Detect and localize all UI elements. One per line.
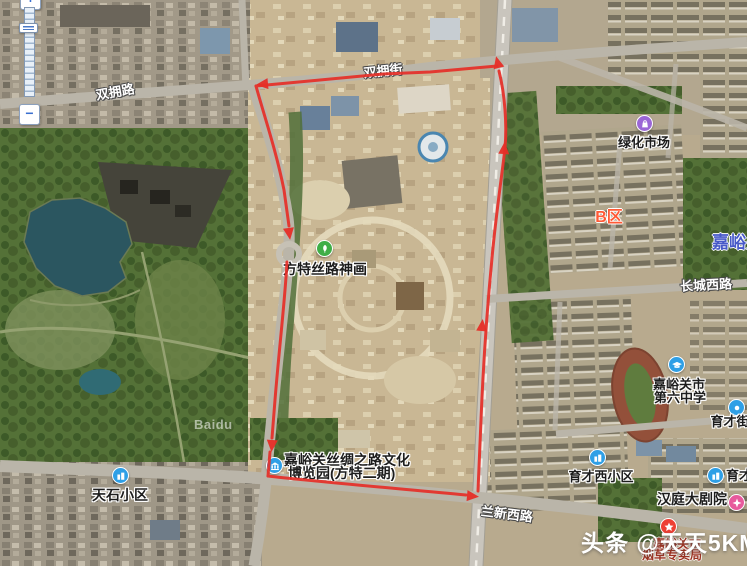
road-label-changcheng-west: 长城西路 [680,273,733,295]
poi-label-fangte-silk-road[interactable]: 方特丝路神画 [283,263,367,276]
area-label-b-district: B区 [595,203,623,227]
zoom-out-button[interactable]: − [19,104,40,125]
poi-label-expo-line2[interactable]: 博览园(方特二期) [288,467,395,480]
residence-icon[interactable] [589,449,606,466]
poi-label-yucai-clipped[interactable]: 育才 [726,469,747,482]
poi-label-lvhua-market[interactable]: 绿化市场 [618,136,670,149]
poi-label-tianshi[interactable]: 天石小区 [92,489,148,502]
map-canvas[interactable]: Baidu 双拥路 双拥街 长城西路 兰新西路 B区 嘉峪关 方特丝路神画 绿化… [0,0,747,566]
road-label-shuangyong-street: 双拥街 [363,59,404,82]
shopping-icon[interactable] [636,115,653,132]
toutiao-watermark: 头条 @天天5KM [581,524,747,558]
scenic-icon[interactable] [316,240,333,257]
theatre-icon[interactable] [728,494,745,511]
poi-label-hanting-theatre[interactable]: 汉庭大剧院 [657,493,727,506]
zoom-slider-track[interactable] [24,7,35,97]
school-icon[interactable] [668,356,685,373]
poi-label-school-line2[interactable]: 第六中学 [654,391,706,404]
zoom-slider-handle[interactable] [19,23,38,33]
residence-icon[interactable] [112,467,129,484]
poi-label-yucai-street[interactable]: 育才街 [710,415,747,428]
museum-icon[interactable] [266,457,283,474]
poi-label-yucai-west[interactable]: 育才西小区 [568,470,633,483]
residence-icon[interactable] [707,467,724,484]
area-label-jiayuguan: 嘉峪关 [712,228,747,253]
map-provider-watermark: Baidu [194,417,233,432]
